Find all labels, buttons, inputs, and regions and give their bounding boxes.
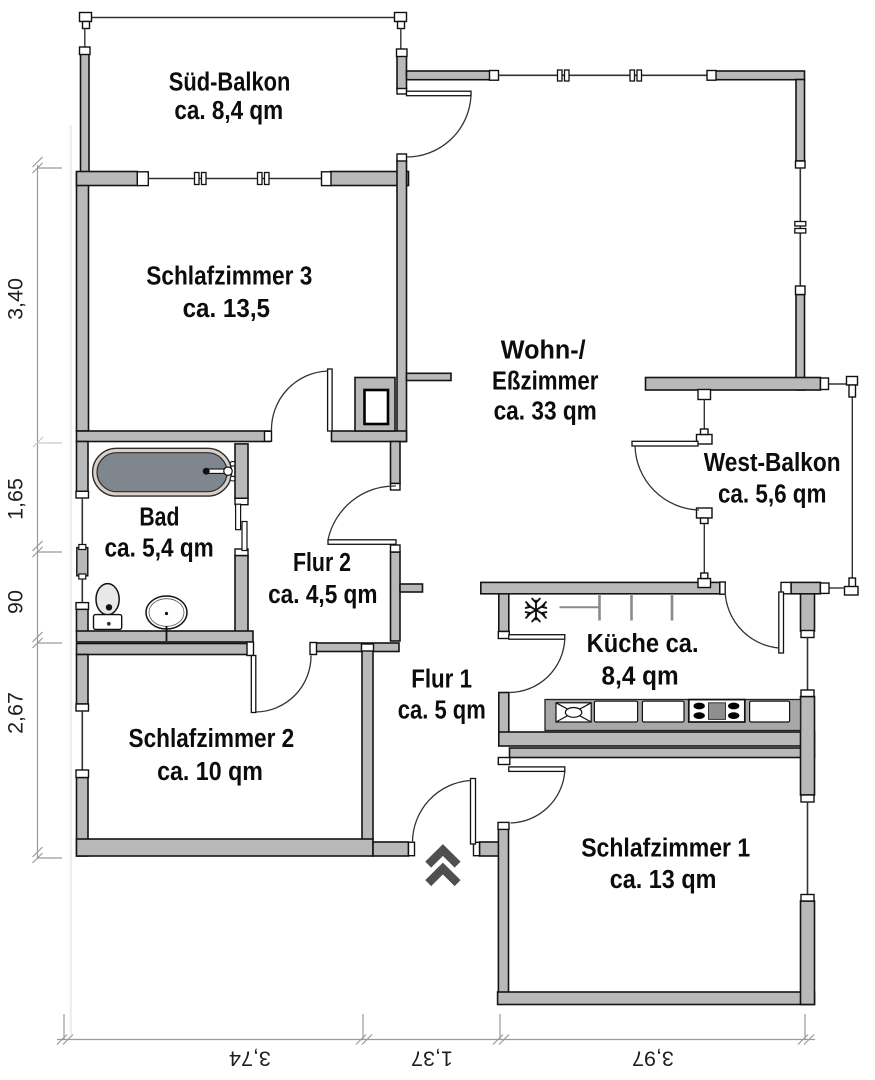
svg-text:Eßzimmer: Eßzimmer: [492, 368, 598, 396]
svg-text:3,97: 3,97: [632, 1047, 674, 1071]
svg-text:Schlafzimmer 1: Schlafzimmer 1: [581, 835, 750, 863]
svg-text:3,74: 3,74: [229, 1047, 271, 1071]
svg-text:Flur 1: Flur 1: [411, 666, 472, 694]
svg-text:Schlafzimmer 2: Schlafzimmer 2: [129, 725, 295, 753]
svg-text:ca. 4,5 qm: ca. 4,5 qm: [268, 581, 377, 609]
svg-text:90: 90: [4, 590, 28, 614]
svg-text:2,67: 2,67: [4, 692, 28, 734]
svg-text:Süd-Balkon: Süd-Balkon: [169, 68, 291, 96]
svg-text:3,40: 3,40: [4, 278, 28, 320]
svg-text:Wohn-/: Wohn-/: [501, 337, 586, 365]
svg-text:ca. 5,4 qm: ca. 5,4 qm: [105, 535, 214, 563]
svg-text:ca. 13,5: ca. 13,5: [183, 295, 270, 323]
svg-text:ca. 8,4 qm: ca. 8,4 qm: [174, 97, 283, 125]
svg-text:Flur 2: Flur 2: [293, 549, 351, 577]
svg-text:Bad: Bad: [139, 504, 179, 532]
svg-text:8,4 qm: 8,4 qm: [602, 662, 679, 690]
svg-text:Schlafzimmer 3: Schlafzimmer 3: [146, 262, 312, 290]
svg-text:Küche ca.: Küche ca.: [587, 630, 699, 658]
svg-text:1,65: 1,65: [4, 478, 28, 520]
svg-text:ca. 5,6 qm: ca. 5,6 qm: [718, 481, 827, 509]
svg-text:ca. 10 qm: ca. 10 qm: [157, 758, 263, 786]
svg-text:ca. 13 qm: ca. 13 qm: [610, 866, 717, 894]
svg-text:West-Balkon: West-Balkon: [704, 449, 841, 477]
svg-text:ca. 33 qm: ca. 33 qm: [494, 398, 597, 426]
svg-text:1,37: 1,37: [411, 1047, 453, 1071]
svg-text:ca. 5 qm: ca. 5 qm: [398, 697, 486, 725]
